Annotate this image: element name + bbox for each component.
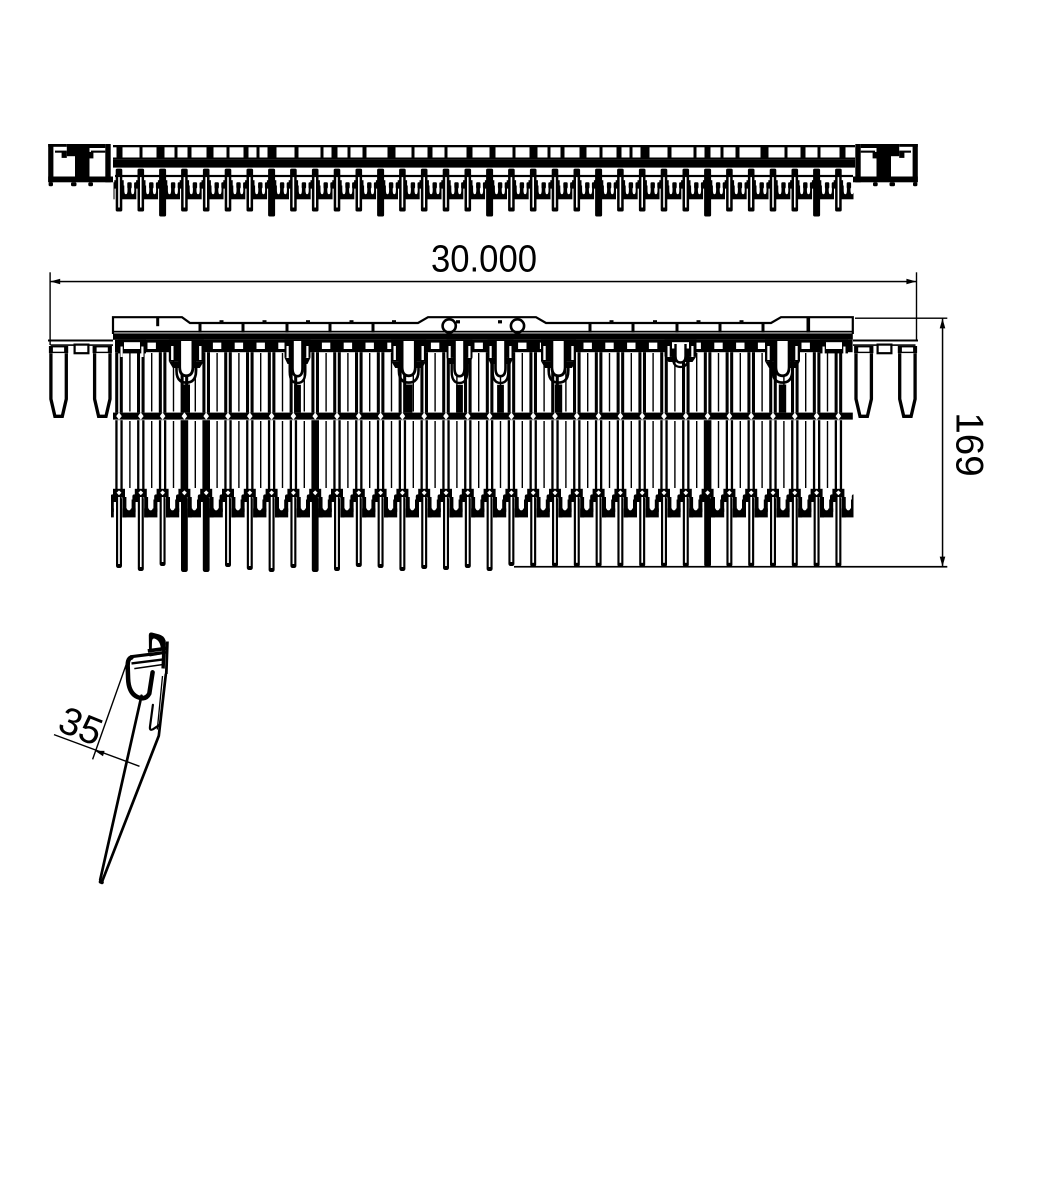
svg-text:169: 169 xyxy=(948,412,991,476)
svg-text:30.000: 30.000 xyxy=(431,239,537,281)
